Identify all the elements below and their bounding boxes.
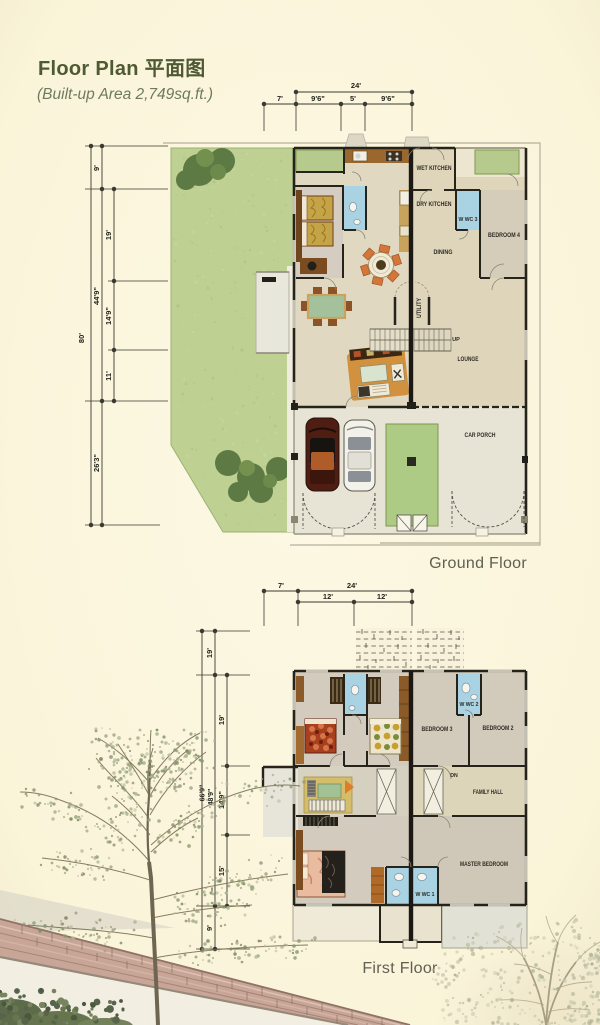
svg-text:(Built-up Area 2,749sq.ft.): (Built-up Area 2,749sq.ft.) <box>37 86 213 103</box>
svg-text:BEDROOM 4: BEDROOM 4 <box>488 232 520 239</box>
svg-text:24': 24' <box>347 581 357 590</box>
svg-text:19': 19' <box>217 715 226 725</box>
svg-text:14'9": 14'9" <box>104 307 113 325</box>
svg-text:9': 9' <box>205 925 214 931</box>
svg-text:66'9": 66'9" <box>200 785 207 802</box>
svg-text:CAR PORCH: CAR PORCH <box>465 432 496 439</box>
svg-text:W WC 3: W WC 3 <box>459 217 478 223</box>
svg-text:LOUNGE: LOUNGE <box>458 356 479 363</box>
svg-text:9': 9' <box>92 165 101 171</box>
svg-text:5': 5' <box>350 94 356 103</box>
svg-text:9'6": 9'6" <box>381 94 395 103</box>
svg-text:MASTER BEDROOM: MASTER BEDROOM <box>460 861 508 868</box>
svg-text:26'3": 26'3" <box>92 454 101 472</box>
svg-text:11': 11' <box>104 371 113 381</box>
svg-text:7': 7' <box>277 94 283 103</box>
svg-text:WET KITCHEN: WET KITCHEN <box>417 165 452 172</box>
svg-text:Ground Floor: Ground Floor <box>429 555 527 572</box>
svg-text:DN: DN <box>450 773 458 779</box>
svg-text:UTILITY: UTILITY <box>416 297 423 318</box>
svg-text:7': 7' <box>278 581 284 590</box>
svg-text:BEDROOM 3: BEDROOM 3 <box>422 726 453 733</box>
svg-text:UP: UP <box>452 337 460 343</box>
svg-text:12': 12' <box>323 592 333 601</box>
svg-text:FAMILY HALL: FAMILY HALL <box>473 789 503 796</box>
svg-text:BEDROOM 2: BEDROOM 2 <box>483 725 514 732</box>
svg-text:19': 19' <box>104 230 113 240</box>
svg-text:Floor Plan 平面图: Floor Plan 平面图 <box>38 57 206 80</box>
svg-text:24': 24' <box>351 81 361 90</box>
svg-text:12': 12' <box>377 592 387 601</box>
svg-text:DRY KITCHEN: DRY KITCHEN <box>417 201 452 208</box>
svg-text:W WC 1: W WC 1 <box>416 892 435 898</box>
svg-text:80': 80' <box>77 333 86 343</box>
svg-text:44'9": 44'9" <box>92 287 101 305</box>
svg-text:9'6": 9'6" <box>311 94 325 103</box>
svg-text:W WC 2: W WC 2 <box>460 702 479 708</box>
svg-text:DINING: DINING <box>434 249 453 256</box>
svg-text:19': 19' <box>205 648 214 658</box>
svg-text:15': 15' <box>217 866 226 876</box>
